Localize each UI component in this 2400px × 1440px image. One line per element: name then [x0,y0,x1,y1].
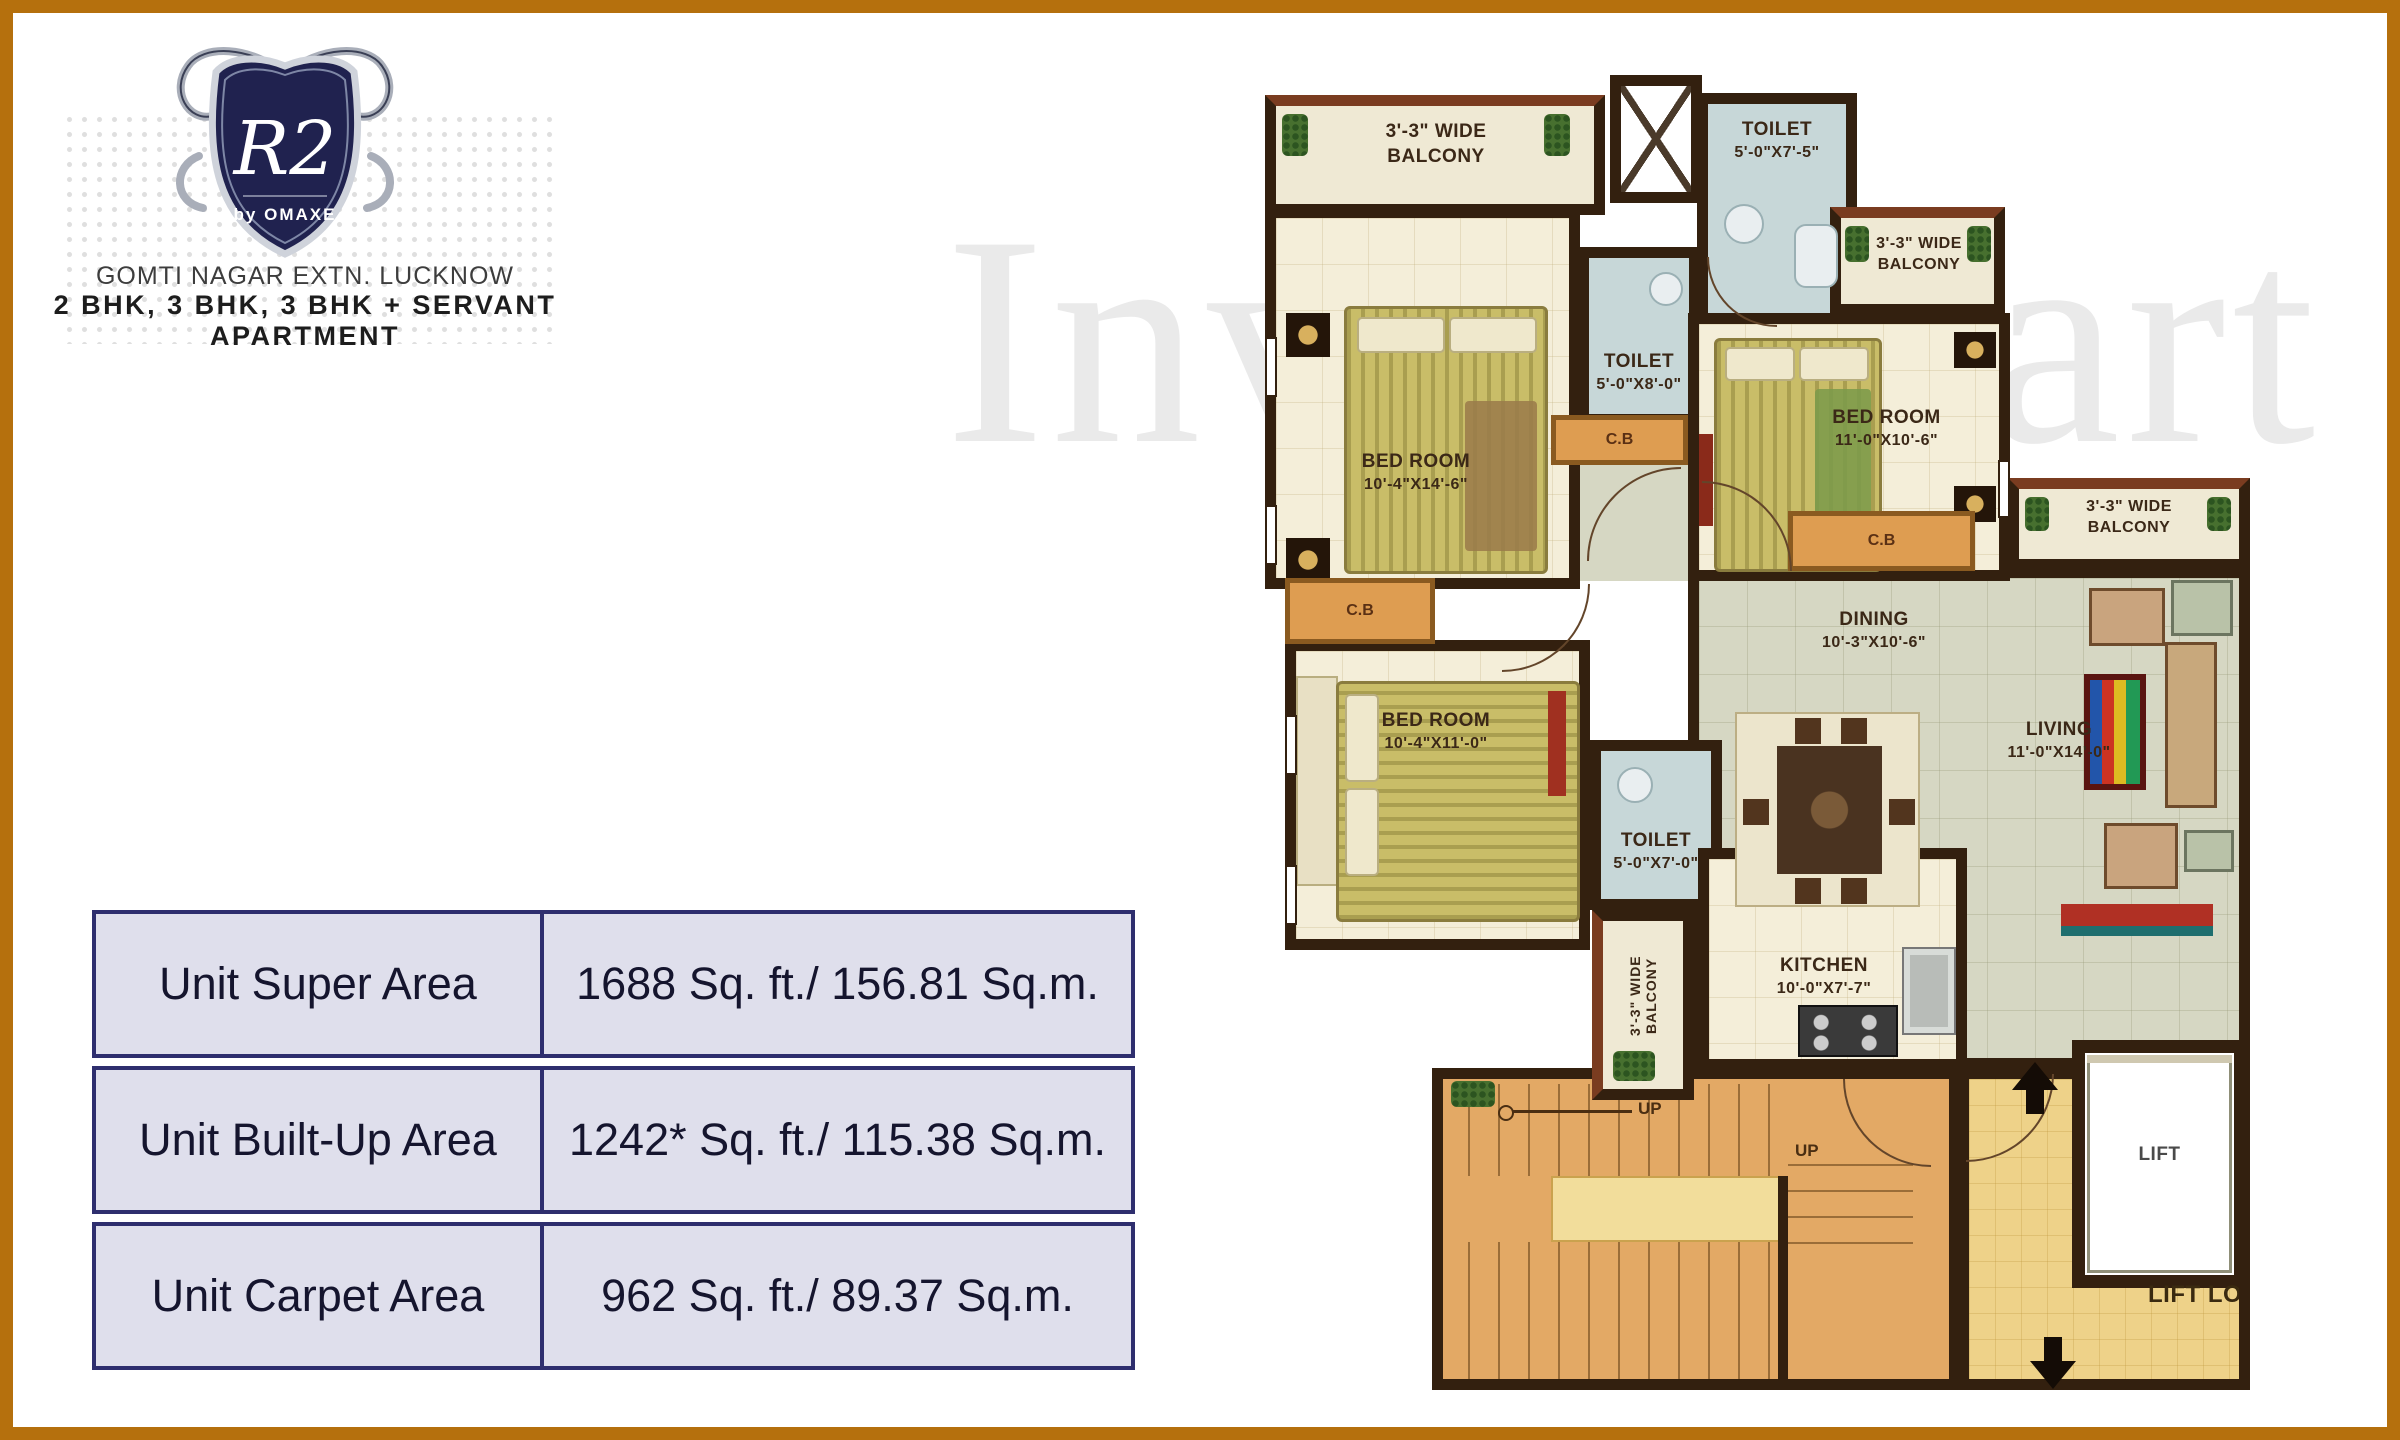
pillow [1725,347,1795,381]
washbasin-icon [1617,767,1653,803]
dining-table [1777,746,1882,874]
window-icon [1285,865,1297,925]
armchair [2089,588,2165,646]
dining-table-set [1735,712,1920,907]
label-bedroom-3: BED ROOM 10'-4"X11'-0" [1341,709,1531,754]
stair-treads [1468,1242,1778,1379]
pillow [1799,347,1869,381]
table-row: Unit Super Area 1688 Sq. ft./ 156.81 Sq.… [92,910,1135,1058]
pillow [1357,317,1445,353]
plant-icon [1282,114,1308,156]
plant-icon [2207,497,2231,531]
sofa [2104,823,2178,889]
pillow [1345,788,1379,876]
cupboard-label: C.B [1606,431,1634,449]
room-balcony-top-right: 3'-3" WIDE BALCONY [1830,207,2005,315]
plant-icon [1451,1081,1495,1107]
label-balcony-side: 3'-3" WIDE BALCONY [1627,931,1659,1061]
label-dining: DINING 10'-3"X10'-6" [1794,608,1954,653]
table-row: Unit Carpet Area 962 Sq. ft./ 89.37 Sq.m… [92,1222,1135,1370]
chair [1743,799,1769,825]
window-icon [1265,337,1277,397]
side-table [2171,580,2233,636]
room-balcony-side: 3'-3" WIDE BALCONY [1592,910,1694,1100]
label-bedroom-2: BED ROOM 11'-0"X10'-6" [1794,406,1979,451]
wc-icon [1794,224,1838,288]
label-bedroom-1: BED ROOM 10'-4"X14'-6" [1306,450,1526,495]
project-location: GOMTI NAGAR EXTN. LUCKNOW [55,262,555,291]
shield-crest-icon: R2 by OMAXE [155,34,415,274]
plant-icon [1544,114,1570,156]
chair [1841,718,1867,744]
window-icon [1998,460,2010,518]
row-label: Unit Super Area [96,914,544,1054]
brand-shield-logo: R2 by OMAXE [155,34,415,274]
chair [1795,878,1821,904]
table-row: Unit Built-Up Area 1242* Sq. ft./ 115.38… [92,1066,1135,1214]
rug-runner [1548,691,1566,796]
stair-wall [1778,1176,1788,1379]
stove-icon [1798,1005,1898,1057]
bench-rug [2061,904,2213,936]
row-value: 1242* Sq. ft./ 115.38 Sq.m. [544,1070,1131,1210]
lift-door-strip [2087,1055,2232,1063]
bedside-table [1286,313,1330,357]
label-toilet-top: TOILET 5'-0"X7'-5" [1708,118,1846,163]
room-balcony-right: 3'-3" WIDE BALCONY [2008,478,2250,570]
room-bedroom-1: BED ROOM 10'-4"X14'-6" [1265,207,1580,589]
cupboard-label: C.B [1346,602,1374,620]
chair [1889,799,1915,825]
label-lift: LIFT [2085,1143,2234,1168]
washbasin-icon [1649,272,1683,306]
plant-icon [2025,497,2049,531]
cupboard-block: C.B [1551,415,1688,465]
headboard [1296,676,1338,886]
washbasin-icon [1724,204,1764,244]
label-balcony-top-right: 3'-3" WIDE BALCONY [1849,234,1989,276]
room-bedroom-3: BED ROOM 10'-4"X11'-0" [1285,640,1590,950]
room-lift: LIFT [2072,1040,2247,1288]
row-label: Unit Carpet Area [96,1226,544,1366]
shaft-cross-icon [1610,75,1702,203]
bedside-table [1286,538,1330,582]
label-balcony-top-left: 3'-3" WIDE BALCONY [1336,120,1536,169]
row-value: 962 Sq. ft./ 89.37 Sq.m. [544,1226,1131,1366]
row-label: Unit Built-Up Area [96,1070,544,1210]
label-toilet-bottom: TOILET 5'-0"X7'-0" [1601,829,1711,874]
side-table [2184,830,2234,872]
stair-treads [1788,1159,1913,1244]
unit-area-table: Unit Super Area 1688 Sq. ft./ 156.81 Sq.… [92,910,1135,1378]
label-lift-lobby: LIFT LOBBY [2148,1279,2250,1310]
cupboard-block: C.B [1788,511,1975,571]
stair-direction-dot [1498,1105,1514,1121]
kitchen-counter-sink [1902,947,1956,1035]
stairs-up-label: UP [1638,1099,1662,1119]
bed [1344,306,1548,574]
floor-plan: DINING 10'-3"X10'-6" LIVING 11'-0"X14'-0… [1265,75,2250,1390]
cupboard-label: C.B [1868,532,1896,550]
window-icon [1265,505,1277,565]
door-arc [1843,1079,1931,1167]
stair-direction-line [1512,1110,1632,1113]
cupboard-block: C.B [1285,578,1435,644]
chair [1841,878,1867,904]
room-balcony-top-left: 3'-3" WIDE BALCONY [1265,95,1605,215]
room-staircase: UP UP [1432,1068,1960,1390]
chair [1795,718,1821,744]
stair-landing [1551,1176,1781,1242]
brand-subtitle: by OMAXE [234,205,337,224]
label-balcony-right: 3'-3" WIDE BALCONY [2049,497,2209,539]
window-icon [1285,715,1297,775]
label-kitchen: KITCHEN 10'-0"X7'-7" [1739,954,1909,999]
entry-arrow-down-icon [2030,1337,2076,1389]
project-tagline: 2 BHK, 3 BHK, 3 BHK + SERVANT APARTMENT [40,290,570,352]
room-toilet-mid: TOILET 5'-0"X8'-0" [1578,247,1700,425]
row-value: 1688 Sq. ft./ 156.81 Sq.m. [544,914,1131,1054]
brand-name: R2 [232,106,337,192]
pillow [1449,317,1537,353]
label-toilet-mid: TOILET 5'-0"X8'-0" [1589,350,1689,395]
stairs-up-label: UP [1795,1141,1819,1161]
entry-arrow-up-icon [2012,1062,2058,1114]
console-unit [2165,642,2217,808]
bedside-table [1954,332,1996,368]
label-living: LIVING 11'-0"X14'-0" [1974,718,2144,763]
